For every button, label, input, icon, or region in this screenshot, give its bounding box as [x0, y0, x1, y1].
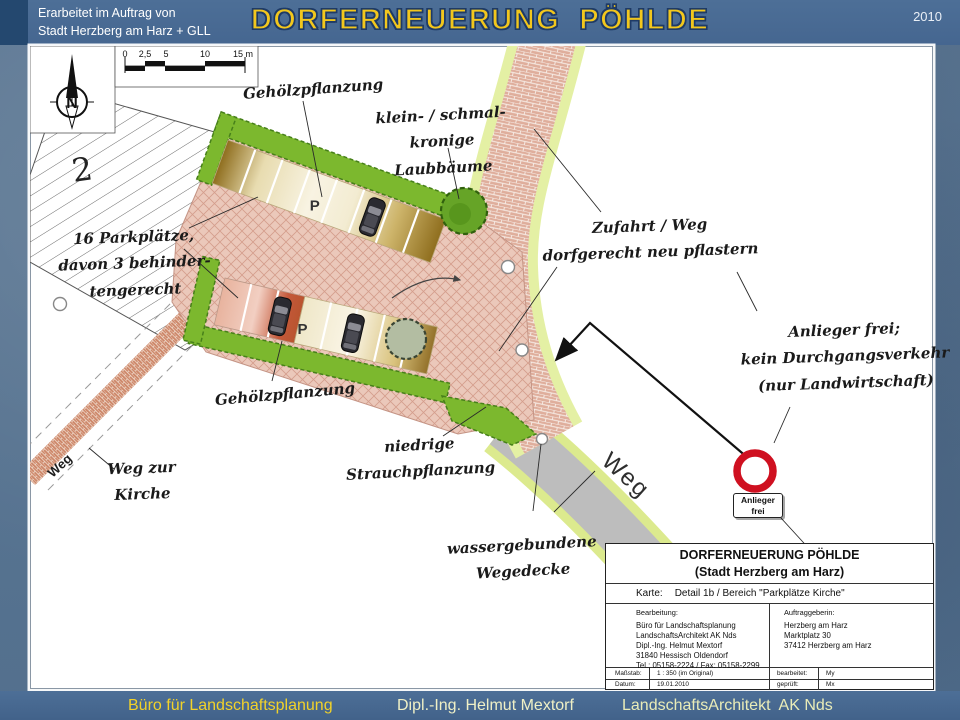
footer-band: Büro für Landschaftsplanung Dipl.-Ing. H… [0, 691, 960, 720]
annotation-weg-zur-kirche: Weg zur Kirche [91, 453, 193, 509]
parking-p-marker: P [298, 321, 308, 338]
title-block: DORFERNEUERUNG PÖHLDE (Stadt Herzberg am… [605, 543, 934, 690]
scale-tick-2-5: 2,5 [139, 49, 152, 59]
slide: Erarbeitet im Auftrag von Stadt Herzberg… [0, 0, 960, 720]
datum-label: Datum: [606, 680, 650, 691]
slide-title: DORFERNEUERUNG PÖHLDE [0, 4, 960, 37]
north-letter: N [66, 95, 78, 112]
annotation-line: kronige Laubbäume [367, 124, 518, 184]
auftraggeberin-line: 37412 Herzberg am Harz [784, 641, 933, 651]
massstab-value: 1 : 350 (im Original) [650, 668, 770, 679]
footer-credential: LandschaftsArchitekt AK Nds [622, 697, 833, 715]
no-entry-sign-icon [737, 453, 773, 489]
title-block-date-row: Datum: 19.01.2010 geprüft: Mx [606, 680, 933, 691]
karte-value: Detail 1b / Bereich "Parkplätze Kirche" [675, 588, 845, 599]
auftraggeberin-line: Marktplatz 30 [784, 631, 933, 641]
scale-tick-15: 15 m [233, 49, 253, 59]
footer-author: Dipl.-Ing. Helmut Mextorf [397, 697, 574, 715]
bearbeitung-line: Dipl.-Ing. Helmut Mextorf [636, 641, 769, 651]
auftraggeberin-line: Herzberg am Harz [784, 621, 933, 631]
sign-label-line1: Anlieger [734, 495, 782, 506]
bearbeitet-label: bearbeitet: [770, 668, 819, 679]
auftraggeberin-cell: Auftraggeberin: Herzberg am Harz Marktpl… [770, 604, 933, 667]
tree-crown-shade [449, 203, 471, 225]
header-band: Erarbeitet im Auftrag von Stadt Herzberg… [0, 0, 960, 45]
bearbeitung-line: LandschaftsArchitekt AK Nds [636, 631, 769, 641]
title-block-parties: Bearbeitung: Büro für Landschaftsplanung… [606, 604, 933, 668]
massstab-label: Maßstab: [606, 668, 650, 679]
survey-circle [502, 261, 515, 274]
direction-arrow [556, 323, 755, 464]
annotation-line: Weg zur [91, 453, 192, 483]
leader-line [737, 272, 757, 311]
bearbeitung-line: Büro für Landschaftsplanung [636, 621, 769, 631]
sign-label-line2: frei [734, 506, 782, 517]
annotation-zufahrt: Zufahrt / Weg dorfgerecht neu pflastern [539, 209, 761, 269]
auftraggeberin-lines: Herzberg am Harz Marktplatz 30 37412 Her… [784, 621, 933, 651]
scale-tick-10: 10 [200, 49, 210, 59]
scale-tick-0: 0 [122, 49, 127, 59]
title-block-header: DORFERNEUERUNG PÖHLDE (Stadt Herzberg am… [606, 544, 933, 584]
existing-tree-icon [386, 319, 426, 359]
bearbeitet-value: My [819, 668, 933, 679]
scale-tick-5: 5 [163, 49, 168, 59]
bearbeitung-cell: Bearbeitung: Büro für Landschaftsplanung… [606, 604, 770, 667]
bearbeitung-label: Bearbeitung: [636, 608, 769, 617]
bearbeitung-lines: Büro für Landschaftsplanung LandschaftsA… [636, 621, 769, 671]
church-path [30, 310, 196, 478]
annotation-line: Kirche [92, 480, 193, 510]
auftraggeberin-label: Auftraggeberin: [784, 608, 933, 617]
year-label: 2010 [913, 9, 942, 24]
title-block-scale-row: Maßstab: 1 : 350 (im Original) bearbeite… [606, 668, 933, 680]
leader-line [774, 407, 790, 443]
karte-label: Karte: [636, 588, 663, 599]
title-block-title2: (Stadt Herzberg am Harz) [606, 564, 933, 581]
annotation-wegedecke: wassergebundene Wegedecke [439, 528, 607, 589]
survey-circle [537, 434, 548, 445]
datum-value: 19.01.2010 [650, 680, 770, 691]
annotation-laubbaeume: klein- / schmal- kronige Laubbäume [366, 98, 518, 184]
geprueft-label: geprüft: [770, 680, 819, 691]
title-block-karte-row: Karte: Detail 1b / Bereich "Parkplätze K… [606, 584, 933, 604]
sign-label-plate: Anlieger frei [733, 493, 783, 518]
annotation-anlieger: Anlieger frei; kein Durchgangsverkehr (n… [734, 313, 957, 399]
annotation-strauch: niedrige Strauchpflanzung [339, 428, 502, 489]
footer-office: Büro für Landschaftsplanung [128, 697, 333, 715]
bearbeitung-line: 31840 Hessisch Oldendorf [636, 651, 769, 661]
annotation-parkplaetze: 16 Parkplätze, davon 3 behinder- tengere… [51, 221, 219, 305]
survey-circle [516, 344, 528, 356]
geprueft-value: Mx [819, 680, 933, 691]
parking-p-marker: P [310, 198, 320, 215]
title-block-title1: DORFERNEUERUNG PÖHLDE [606, 547, 933, 564]
